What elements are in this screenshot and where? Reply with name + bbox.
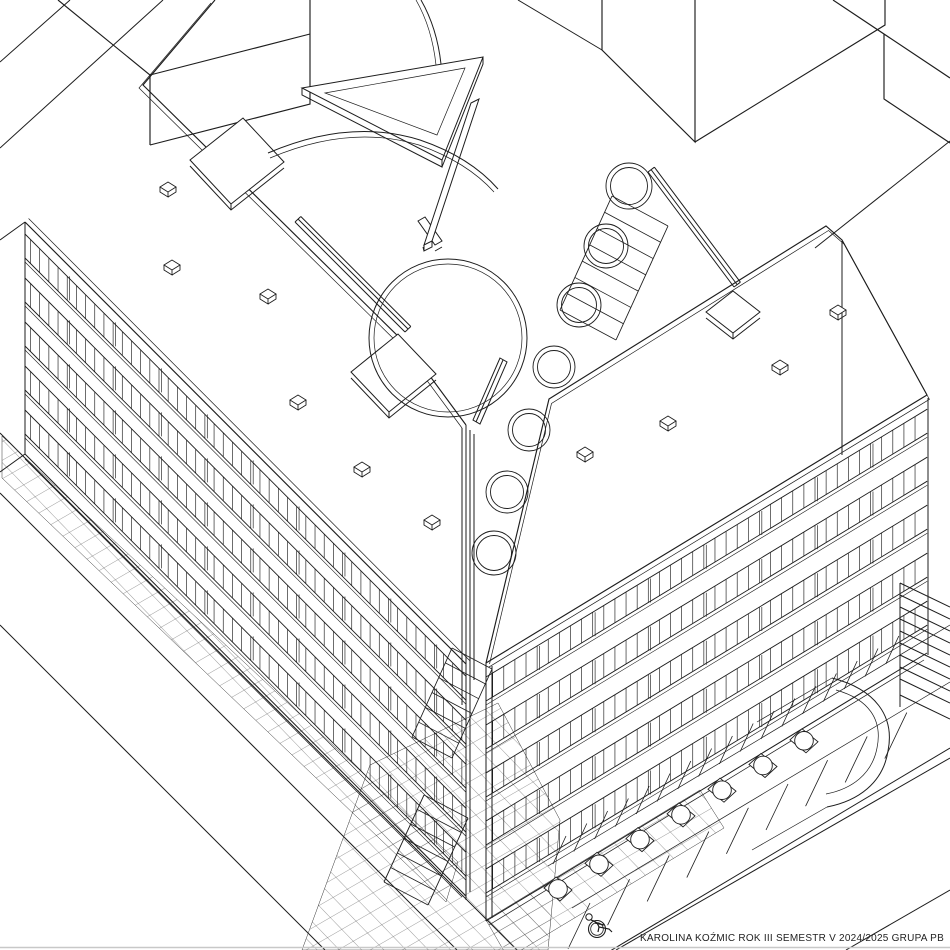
footbridge-plate [351,334,436,418]
roof-bridge-strip [648,167,740,287]
drawing-canvas: KAROLINA KOŹMIC ROK III SEMESTR V 2024/2… [0,0,950,950]
parking-stall-row [553,636,899,864]
neighbor-building-north [602,0,885,142]
left-wing-northwest-end [0,222,25,472]
arrow-sculpture [302,57,483,251]
site-axonometric-drawing: KAROLINA KOŹMIC ROK III SEMESTR V 2024/2… [0,0,950,950]
caption: KAROLINA KOŹMIC ROK III SEMESTR V 2024/2… [640,931,944,944]
footbridge-plate [706,291,760,339]
roof-bridge-strip [295,217,442,333]
wheelchair-icon [586,914,612,938]
neighbor-building-northwest [58,0,310,145]
parking-stall-row [568,713,907,949]
right-wing-roof-parapet [486,226,930,667]
neighbor-building-northeast [833,0,950,143]
right-wing-roof-vents [577,305,846,462]
right-wing-northeast-end [842,241,950,719]
footbridge-plate [190,118,284,210]
railing-sliver [473,358,507,424]
garage-louver-panel [900,583,950,719]
parking-area [544,625,950,949]
plaza-paving-hatch [2,436,724,950]
